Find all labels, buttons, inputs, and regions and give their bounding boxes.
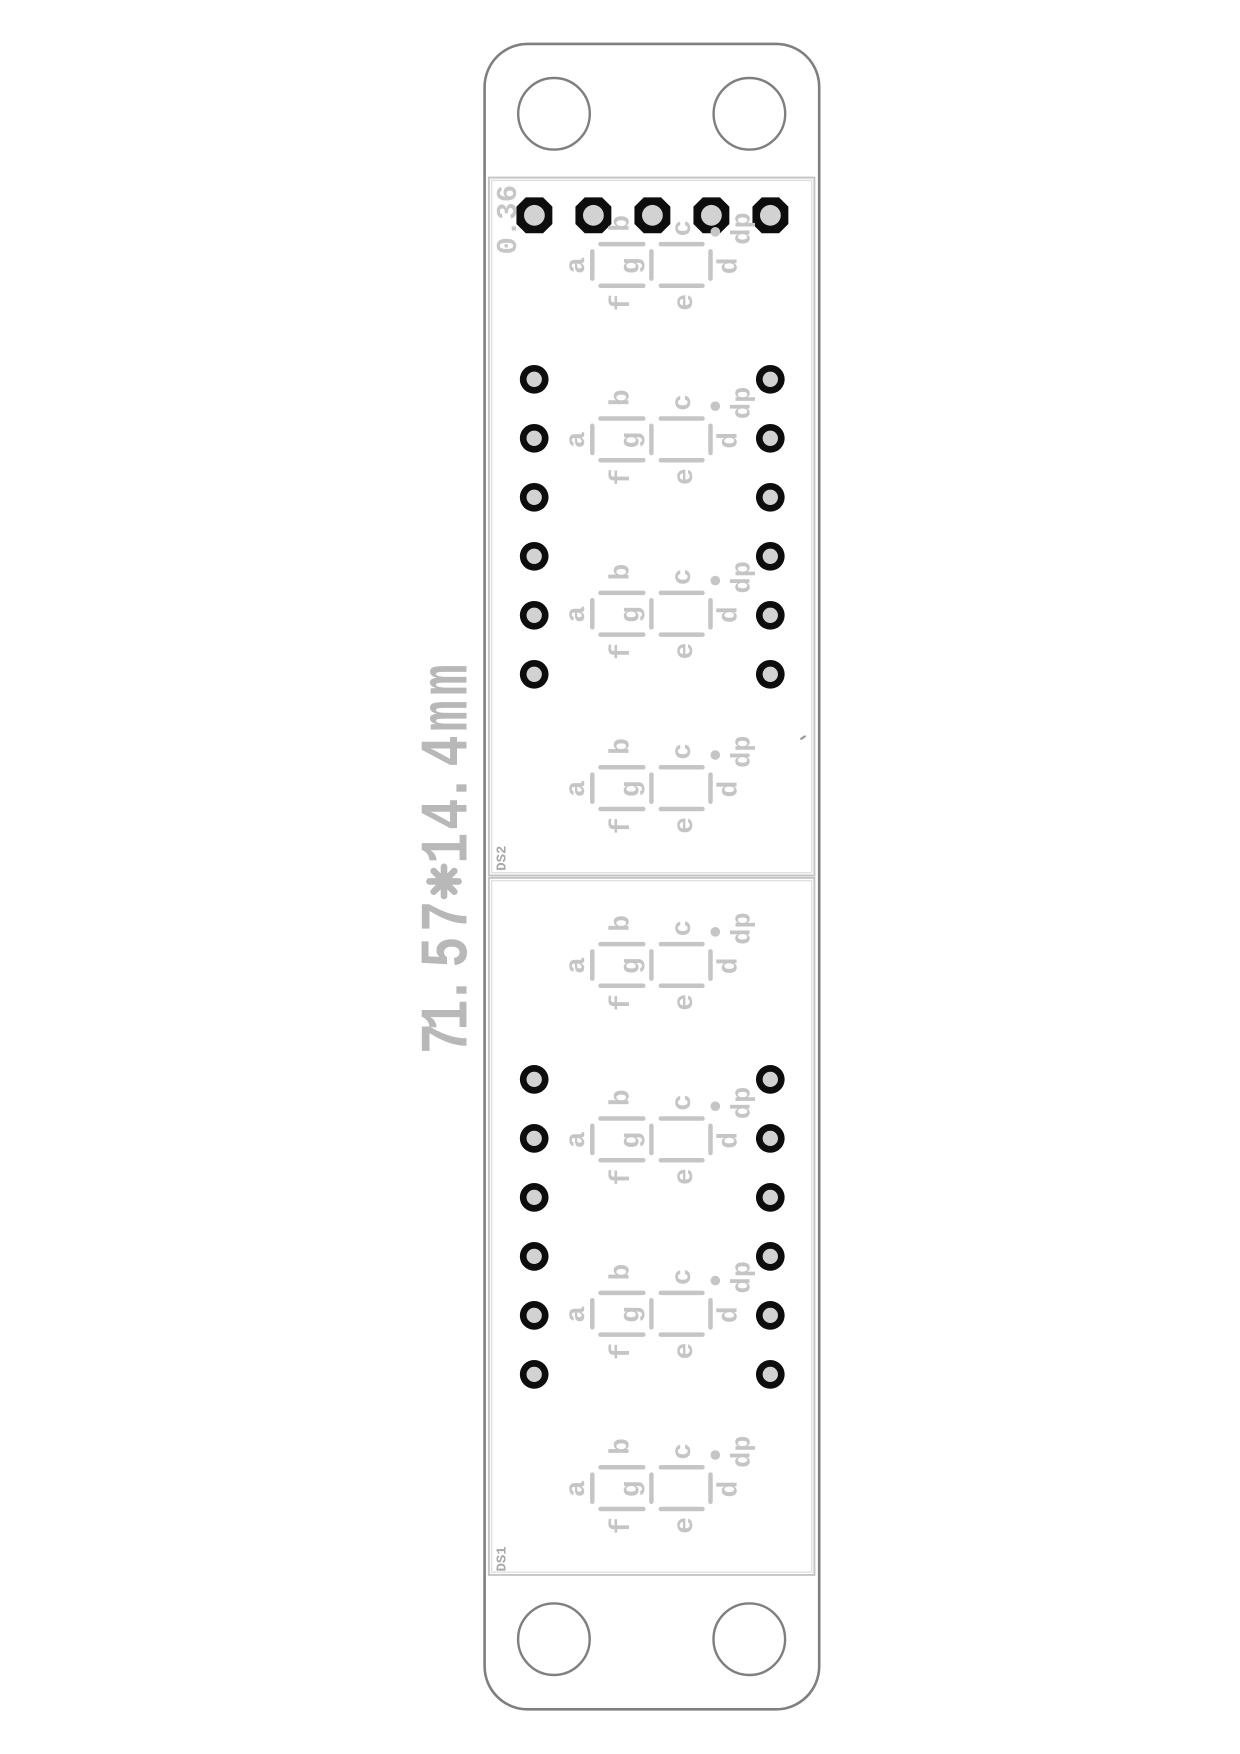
svg-text:.: . (411, 772, 487, 803)
svg-text:m: m (411, 700, 487, 731)
svg-text:7: 7 (411, 901, 487, 932)
svg-text:DS2: DS2 (494, 846, 510, 871)
svg-text:0.36: 0.36 (492, 185, 525, 255)
svg-text:1: 1 (411, 833, 487, 864)
svg-text:m: m (411, 664, 487, 695)
svg-text:.: . (411, 974, 487, 1005)
svg-text:5: 5 (411, 936, 487, 967)
svg-text:DS1: DS1 (494, 1546, 510, 1571)
svg-text:4: 4 (411, 735, 487, 766)
